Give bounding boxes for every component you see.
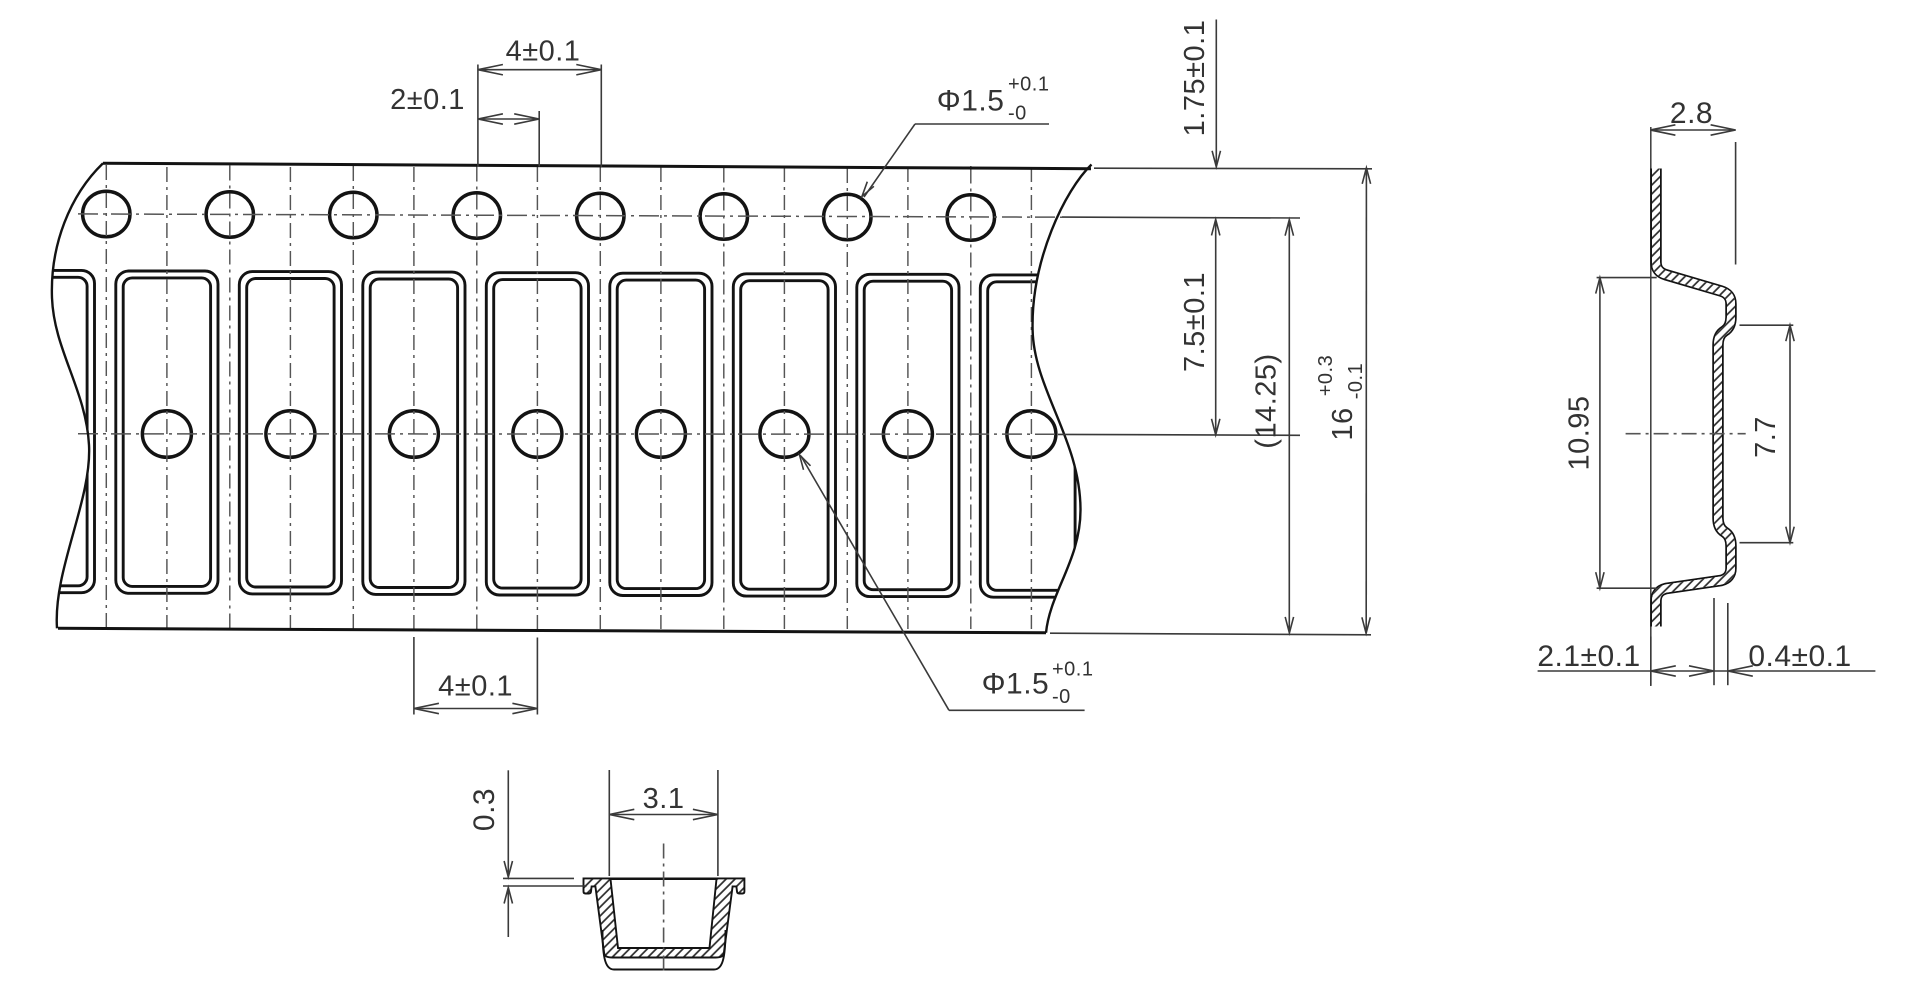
svg-text:-0.1: -0.1 <box>1345 363 1367 399</box>
svg-text:(14.25): (14.25) <box>1250 353 1282 448</box>
svg-text:Φ1.5: Φ1.5 <box>937 85 1005 118</box>
svg-text:-0: -0 <box>1052 686 1071 708</box>
svg-text:0.4±0.1: 0.4±0.1 <box>1748 640 1851 673</box>
svg-text:0.3: 0.3 <box>468 788 501 831</box>
svg-text:2±0.1: 2±0.1 <box>390 84 465 116</box>
svg-text:Φ1.5: Φ1.5 <box>982 668 1050 701</box>
svg-text:3.1: 3.1 <box>643 783 685 815</box>
svg-text:-0: -0 <box>1008 103 1027 125</box>
svg-text:10.95: 10.95 <box>1564 395 1596 470</box>
svg-text:+0.1: +0.1 <box>1052 659 1093 681</box>
svg-text:+0.3: +0.3 <box>1315 355 1337 396</box>
svg-text:7.5±0.1: 7.5±0.1 <box>1179 272 1211 372</box>
svg-text:2.1±0.1: 2.1±0.1 <box>1537 640 1640 673</box>
svg-text:4±0.1: 4±0.1 <box>438 671 513 703</box>
svg-text:7.7: 7.7 <box>1750 416 1782 458</box>
svg-text:+0.1: +0.1 <box>1008 74 1049 96</box>
svg-text:2.8: 2.8 <box>1670 97 1713 130</box>
svg-text:4±0.1: 4±0.1 <box>506 36 581 68</box>
svg-text:1.75±0.1: 1.75±0.1 <box>1179 20 1211 137</box>
svg-text:16: 16 <box>1327 407 1359 440</box>
